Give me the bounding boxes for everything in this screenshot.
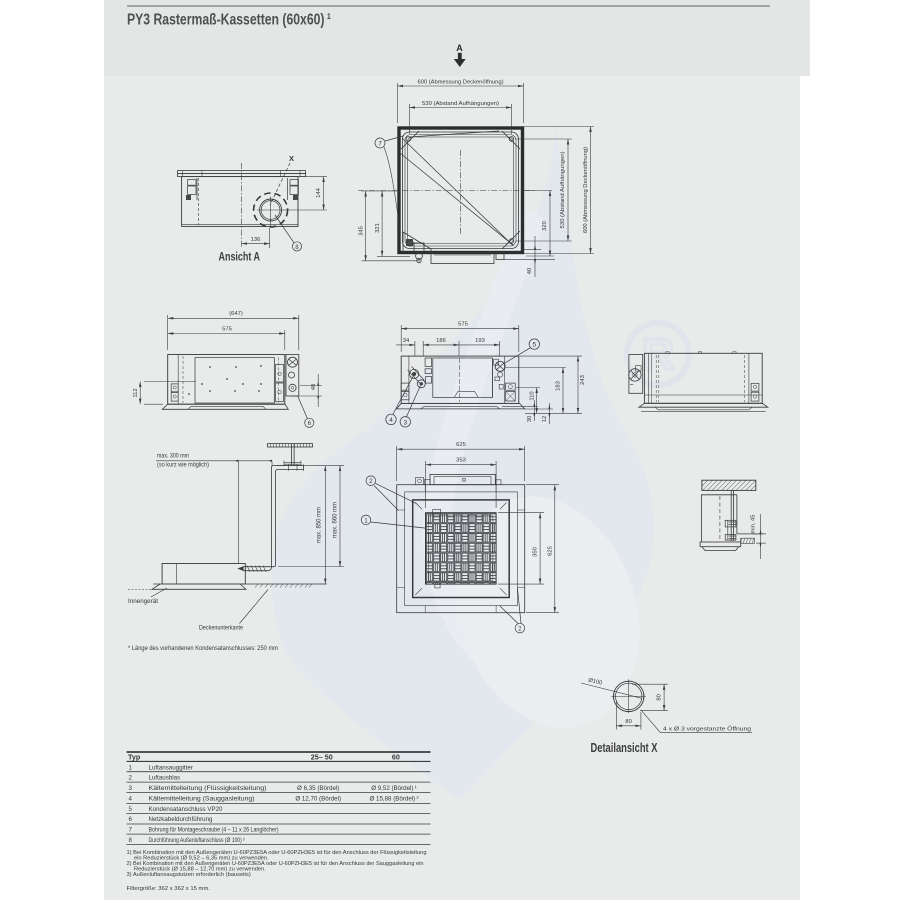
svg-text:Typ: Typ bbox=[128, 752, 141, 761]
svg-text:max. 660 mm: max. 660 mm bbox=[332, 502, 338, 538]
svg-text:2: 2 bbox=[129, 775, 133, 782]
svg-text:8: 8 bbox=[295, 244, 299, 251]
svg-text:625: 625 bbox=[456, 442, 466, 448]
svg-text:575: 575 bbox=[222, 327, 232, 333]
svg-text:Durchführung Außenluftanschlus: Durchführung Außenluftanschluss (Ø 100) … bbox=[149, 837, 245, 844]
svg-text:7: 7 bbox=[129, 827, 133, 834]
svg-text:X: X bbox=[289, 154, 294, 163]
svg-text:5: 5 bbox=[129, 806, 133, 813]
svg-text:80: 80 bbox=[625, 719, 631, 725]
svg-text:8: 8 bbox=[129, 837, 133, 844]
svg-text:7: 7 bbox=[378, 141, 382, 148]
svg-text:183: 183 bbox=[556, 381, 562, 391]
svg-text:530 (Abstand Aufhängungen): 530 (Abstand Aufhängungen) bbox=[560, 151, 566, 228]
svg-text:530 (Abstand Aufhängungen): 530 (Abstand Aufhängungen) bbox=[422, 101, 499, 107]
svg-text:Filtergröße: 362 x 362 x 15 mm: Filtergröße: 362 x 362 x 15 mm. bbox=[127, 886, 211, 892]
svg-text:3) Außenluftansaugstutzen erfo: 3) Außenluftansaugstutzen erforderlich (… bbox=[127, 872, 251, 878]
svg-text:max. 850 mm: max. 850 mm bbox=[317, 507, 323, 543]
svg-text:A: A bbox=[456, 43, 463, 53]
svg-text:Luftansauggitter: Luftansauggitter bbox=[149, 764, 193, 771]
svg-text:Deckenunterkante: Deckenunterkante bbox=[199, 625, 243, 632]
svg-text:353: 353 bbox=[456, 458, 466, 464]
svg-text:3: 3 bbox=[129, 785, 133, 792]
svg-text:60: 60 bbox=[392, 752, 400, 761]
svg-text:* Länge des vorhandenen Konden: * Länge des vorhandenen Kondensatanschlu… bbox=[128, 645, 278, 652]
svg-text:193: 193 bbox=[475, 338, 485, 344]
svg-text:min. 45: min. 45 bbox=[751, 514, 757, 533]
svg-text:Detailansicht X: Detailansicht X bbox=[591, 741, 658, 755]
svg-text:110: 110 bbox=[529, 391, 535, 400]
svg-text:12: 12 bbox=[542, 416, 548, 422]
svg-text:321: 321 bbox=[375, 223, 381, 233]
svg-text:Luftausblas: Luftausblas bbox=[149, 775, 181, 782]
svg-text:1: 1 bbox=[129, 764, 133, 771]
svg-text:345: 345 bbox=[358, 226, 364, 236]
svg-text:25– 50: 25– 50 bbox=[311, 752, 333, 761]
svg-text:Ansicht A: Ansicht A bbox=[219, 252, 261, 264]
svg-text:Ø 12,70 (Bördel): Ø 12,70 (Bördel) bbox=[295, 796, 341, 803]
svg-text:30: 30 bbox=[527, 416, 533, 422]
svg-text:40: 40 bbox=[527, 268, 533, 274]
svg-text:48: 48 bbox=[311, 384, 317, 390]
svg-text:Innengerät: Innengerät bbox=[128, 598, 158, 605]
svg-text:575: 575 bbox=[458, 322, 468, 328]
svg-text:4: 4 bbox=[129, 796, 133, 803]
svg-text:4: 4 bbox=[389, 417, 393, 424]
svg-text:625: 625 bbox=[547, 546, 553, 556]
svg-text:34: 34 bbox=[403, 338, 410, 344]
svg-text:600 (Abmessung Deckenöffnung): 600 (Abmessung Deckenöffnung) bbox=[583, 147, 589, 233]
svg-text:2: 2 bbox=[369, 478, 373, 485]
svg-text:Ø 9,52 (Bördel) ¹: Ø 9,52 (Bördel) ¹ bbox=[371, 785, 417, 792]
svg-text:Kältemittelleitung (Flüssigkei: Kältemittelleitung (Flüssigkeitsleitung) bbox=[149, 785, 267, 792]
svg-text:Bohrung für Montageschraube (4: Bohrung für Montageschraube (4 – 11 x 26… bbox=[149, 827, 279, 834]
svg-text:Ø 6,35 (Bördel): Ø 6,35 (Bördel) bbox=[297, 785, 339, 792]
svg-text:PY3 Rastermaß-Kassetten (60x60: PY3 Rastermaß-Kassetten (60x60) ¹ bbox=[127, 12, 331, 29]
svg-text:144: 144 bbox=[316, 187, 322, 197]
svg-text:350: 350 bbox=[533, 547, 539, 557]
svg-text:4 x Ø 3 vorgestanzte Öffnung: 4 x Ø 3 vorgestanzte Öffnung bbox=[663, 725, 751, 732]
svg-text:112: 112 bbox=[133, 388, 139, 397]
svg-text:(647): (647) bbox=[229, 311, 243, 317]
svg-text:80: 80 bbox=[657, 694, 663, 700]
svg-text:max. 300 mm: max. 300 mm bbox=[157, 453, 189, 460]
svg-text:600 (Abmessung Deckenöffnung): 600 (Abmessung Deckenöffnung) bbox=[418, 80, 504, 86]
svg-text:3: 3 bbox=[403, 419, 407, 426]
svg-text:243: 243 bbox=[580, 375, 586, 385]
svg-text:Kondensatanschluss VP20: Kondensatanschluss VP20 bbox=[149, 806, 224, 813]
svg-text:6: 6 bbox=[129, 816, 133, 823]
svg-text:Ø 15,88 (Bördel) ²: Ø 15,88 (Bördel) ² bbox=[369, 796, 418, 803]
svg-text:Netzkabeldurchführung: Netzkabeldurchführung bbox=[149, 816, 214, 823]
svg-text:136: 136 bbox=[251, 237, 261, 243]
svg-text:186: 186 bbox=[436, 338, 446, 344]
svg-text:Kältemittelleitung (Sauggaslei: Kältemittelleitung (Sauggasleitung) bbox=[149, 796, 255, 803]
svg-text:320: 320 bbox=[542, 221, 548, 231]
svg-text:R: R bbox=[642, 330, 674, 379]
svg-text:(so kurz wie möglich): (so kurz wie möglich) bbox=[157, 462, 209, 469]
svg-text:2: 2 bbox=[518, 626, 522, 633]
svg-text:6: 6 bbox=[308, 420, 312, 427]
svg-text:1: 1 bbox=[364, 517, 368, 524]
svg-text:5: 5 bbox=[532, 342, 536, 349]
